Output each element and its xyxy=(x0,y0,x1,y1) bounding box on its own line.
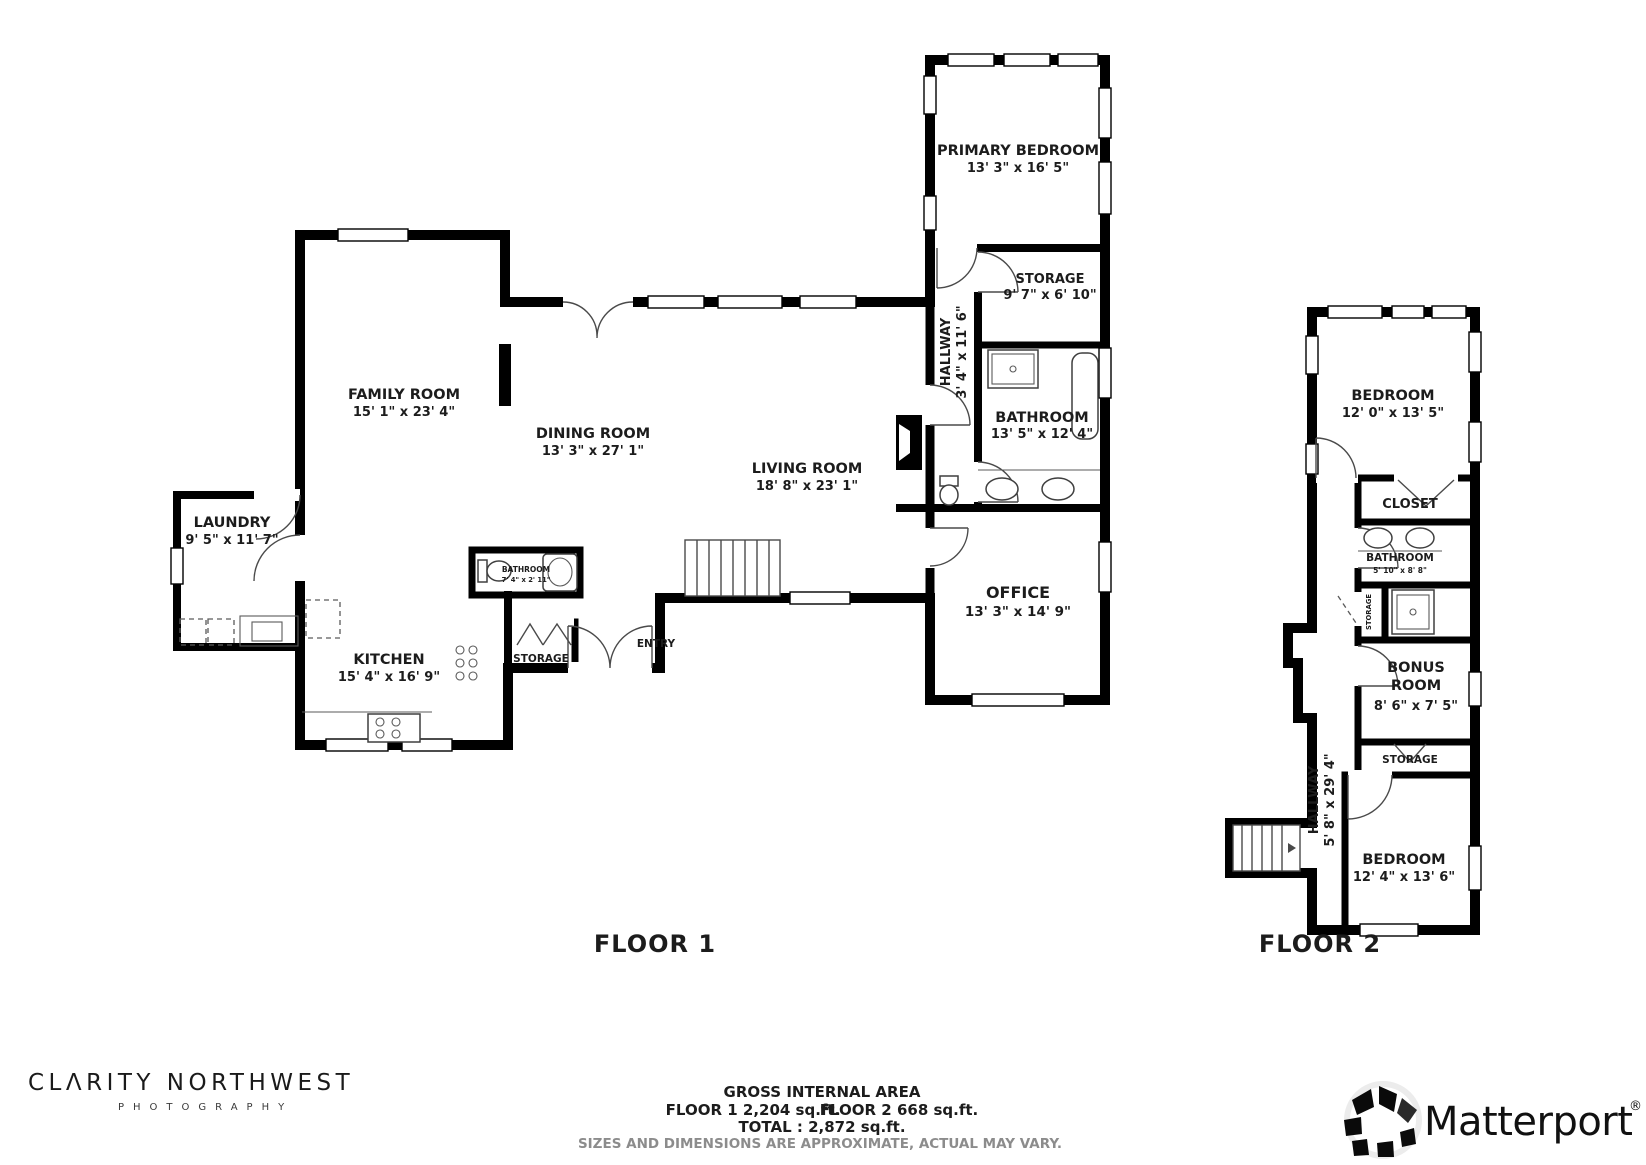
room-dims-bathroom2: 5' 10" x 8' 8" xyxy=(1373,566,1427,575)
floor-plan-canvas: FAMILY ROOM 15' 1" x 23' 4" DINING ROOM … xyxy=(0,0,1646,1165)
room-label-storage-small: STORAGE xyxy=(1365,594,1373,630)
room-dims-storage-wing: 9' 7" x 6' 10" xyxy=(1003,288,1096,303)
footer: GROSS INTERNAL AREA FLOOR 1 2,204 sq.ft.… xyxy=(578,1083,1062,1152)
sink xyxy=(1406,528,1434,548)
room-label-hallway: HALLWAY xyxy=(939,317,954,386)
floor1-stairs xyxy=(685,540,780,596)
room-dims-bedroom-top: 12' 0" x 13' 5" xyxy=(1342,406,1444,421)
floor1-fixtures xyxy=(180,350,1100,742)
floor1-area: FLOOR 1 2,204 sq.ft. xyxy=(666,1101,841,1119)
room-label-bonus-line2: ROOM xyxy=(1391,678,1441,694)
matterport-wordmark: Matterport xyxy=(1424,1099,1632,1145)
room-label-bonus-line1: BONUS xyxy=(1387,660,1445,676)
room-dims-bonus: 8' 6" x 7' 5" xyxy=(1374,699,1458,714)
room-label-bathroom-small: BATHROOM xyxy=(502,565,550,574)
washer xyxy=(180,619,206,645)
room-label-dining-room: DINING ROOM xyxy=(536,426,650,442)
photographer-subtitle: PHOTOGRAPHY xyxy=(118,1102,293,1113)
room-label-storage-wing: STORAGE xyxy=(1016,272,1085,287)
room-label-kitchen: KITCHEN xyxy=(353,652,424,668)
room-dims-office: 13' 3" x 14' 9" xyxy=(965,604,1071,620)
room-dims-laundry: 9' 5" x 11' 7" xyxy=(185,533,278,548)
room-dims-dining-room: 13' 3" x 27' 1" xyxy=(542,444,644,459)
fireplace xyxy=(896,415,922,470)
floor2-stairs xyxy=(1233,825,1300,871)
room-label-closet: CLOSET xyxy=(1382,497,1438,512)
room-label-hallway2: HALLWAY xyxy=(1307,765,1322,834)
room-dims-bathroom-small: 7' 4" x 2' 11" xyxy=(502,576,551,584)
sink xyxy=(986,478,1018,500)
room-dims-hallway: 3' 4" x 11' 6" xyxy=(955,305,970,398)
laundry-sink xyxy=(252,622,282,641)
matterport-icon xyxy=(1344,1084,1419,1157)
photographer-logo: CLΛRITY NORTHWEST PHOTOGRAPHY xyxy=(28,1070,354,1113)
shower xyxy=(1392,590,1434,634)
room-label-storage2: STORAGE xyxy=(1382,754,1438,766)
toilet xyxy=(478,560,487,582)
room-dims-hallway2: 5' 8" x 29' 4" xyxy=(1323,753,1338,846)
shower xyxy=(988,350,1038,388)
dryer xyxy=(208,619,234,645)
room-label-bedroom-bottom: BEDROOM xyxy=(1362,852,1445,868)
room-label-living-room: LIVING ROOM xyxy=(752,461,863,477)
total-area: TOTAL : 2,872 sq.ft. xyxy=(738,1118,905,1136)
room-label-entry: ENTRY xyxy=(637,638,676,650)
room-label-family-room: FAMILY ROOM xyxy=(348,387,460,403)
disclaimer: SIZES AND DIMENSIONS ARE APPROXIMATE, AC… xyxy=(578,1136,1062,1152)
floor-plan-page: FAMILY ROOM 15' 1" x 23' 4" DINING ROOM … xyxy=(0,0,1646,1165)
floor2-area: FLOOR 2 668 sq.ft. xyxy=(820,1101,979,1119)
room-dims-family-room: 15' 1" x 23' 4" xyxy=(353,405,455,420)
kitchen-island xyxy=(306,600,340,638)
sink xyxy=(1364,528,1392,548)
room-label-bathroom: BATHROOM xyxy=(995,410,1088,426)
room-label-primary-bedroom: PRIMARY BEDROOM xyxy=(937,143,1099,159)
floor1-labels: FAMILY ROOM 15' 1" x 23' 4" DINING ROOM … xyxy=(185,143,1099,685)
room-dims-primary-bedroom: 13' 3" x 16' 5" xyxy=(967,161,1069,176)
floor1-caption: FLOOR 1 xyxy=(594,930,716,958)
gross-internal-area-title: GROSS INTERNAL AREA xyxy=(724,1083,921,1101)
room-label-office: OFFICE xyxy=(986,583,1050,602)
room-dims-bathroom: 13' 5" x 12' 4" xyxy=(991,427,1093,442)
room-label-bathroom2: BATHROOM xyxy=(1366,552,1434,564)
matterport-logo: Matterport ® xyxy=(1344,1084,1642,1157)
photographer-name: CLΛRITY NORTHWEST xyxy=(28,1070,354,1096)
room-dims-bedroom-bottom: 12' 4" x 13' 6" xyxy=(1353,870,1455,885)
sink xyxy=(1042,478,1074,500)
room-dims-kitchen: 15' 4" x 16' 9" xyxy=(338,670,440,685)
room-label-storage-kitchen: STORAGE xyxy=(513,653,569,665)
registered-trademark-icon: ® xyxy=(1629,1099,1642,1114)
room-label-bedroom-top: BEDROOM xyxy=(1351,388,1434,404)
room-dims-living-room: 18' 8" x 23' 1" xyxy=(756,479,858,494)
room-label-laundry: LAUNDRY xyxy=(194,515,271,531)
floor2-caption: FLOOR 2 xyxy=(1259,930,1381,958)
